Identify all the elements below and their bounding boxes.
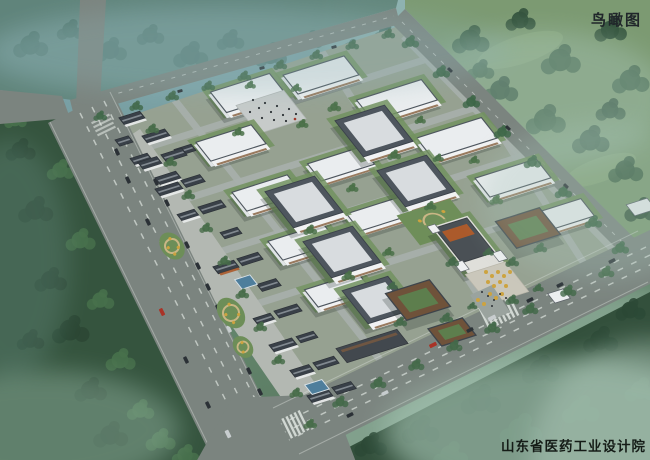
view-title-label: 鸟瞰图 — [591, 11, 642, 29]
design-institute-credit: 山东省医药工业设计院 — [501, 438, 646, 454]
rendering-canvas: 鸟瞰图 山东省医药工业设计院 — [0, 0, 650, 460]
aerial-rendering: 鸟瞰图 山东省医药工业设计院 — [0, 0, 650, 460]
